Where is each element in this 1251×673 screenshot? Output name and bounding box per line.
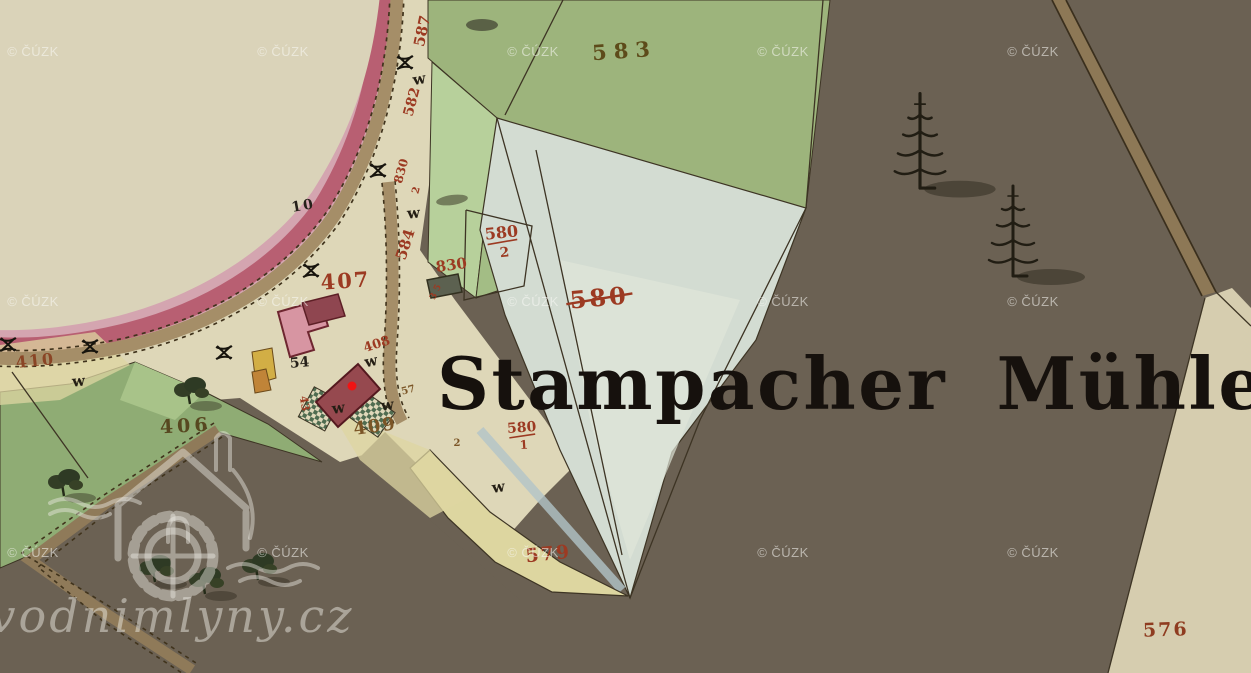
parcel-label-2: 2 xyxy=(454,438,461,449)
svg-text:54: 54 xyxy=(289,354,310,372)
parcel-label-406: 406 xyxy=(159,414,212,439)
parcel-label-576: 576 xyxy=(1143,618,1189,642)
cuzk-watermark: © ČÚZK xyxy=(7,44,59,59)
cuzk-watermark: © ČÚZK xyxy=(1007,294,1059,309)
site-watermark: vodnimlyny.cz xyxy=(0,589,354,643)
cadastral-map: Stampacher Mühle 58758358283025848303 55… xyxy=(0,0,1251,673)
cuzk-watermark: © ČÚZK xyxy=(507,545,559,560)
svg-text:580: 580 xyxy=(569,281,630,315)
cuzk-watermark: © ČÚZK xyxy=(757,44,809,59)
cuzk-watermark: © ČÚZK xyxy=(757,294,809,309)
field-smudge-2 xyxy=(466,19,498,31)
cuzk-watermark: © ČÚZK xyxy=(507,294,559,309)
place-name-label: Stampacher Mühle xyxy=(437,341,1251,426)
parcel-label-43: 43 xyxy=(297,395,312,412)
cuzk-watermark: © ČÚZK xyxy=(257,294,309,309)
svg-text:576: 576 xyxy=(1143,618,1189,642)
meadow-mark: w xyxy=(405,203,422,222)
meadow-mark: w xyxy=(70,371,87,390)
parcel-label-583: 583 xyxy=(591,36,657,65)
svg-text:406: 406 xyxy=(159,414,212,439)
cuzk-watermark: © ČÚZK xyxy=(757,545,809,560)
parcel-label-407: 407 xyxy=(320,266,371,294)
svg-text:43: 43 xyxy=(297,395,312,412)
cuzk-watermark: © ČÚZK xyxy=(7,294,59,309)
cuzk-watermark: © ČÚZK xyxy=(1007,545,1059,560)
svg-text:2: 2 xyxy=(499,244,510,261)
map-stage: Stampacher Mühle 58758358283025848303 55… xyxy=(0,0,1251,673)
svg-text:583: 583 xyxy=(591,36,657,65)
parcel-label-54: 54 xyxy=(289,354,310,372)
cuzk-watermark: © ČÚZK xyxy=(1007,44,1059,59)
svg-text:2: 2 xyxy=(454,438,461,449)
cuzk-watermark: © ČÚZK xyxy=(507,44,559,59)
cuzk-watermark: © ČÚZK xyxy=(257,545,309,560)
cuzk-watermark: © ČÚZK xyxy=(7,545,59,560)
mill-location-dot xyxy=(348,382,357,391)
svg-text:407: 407 xyxy=(320,266,371,294)
cuzk-watermark: © ČÚZK xyxy=(257,44,309,59)
svg-text:1: 1 xyxy=(519,438,528,453)
parcel-label-580: 580 xyxy=(565,280,634,315)
